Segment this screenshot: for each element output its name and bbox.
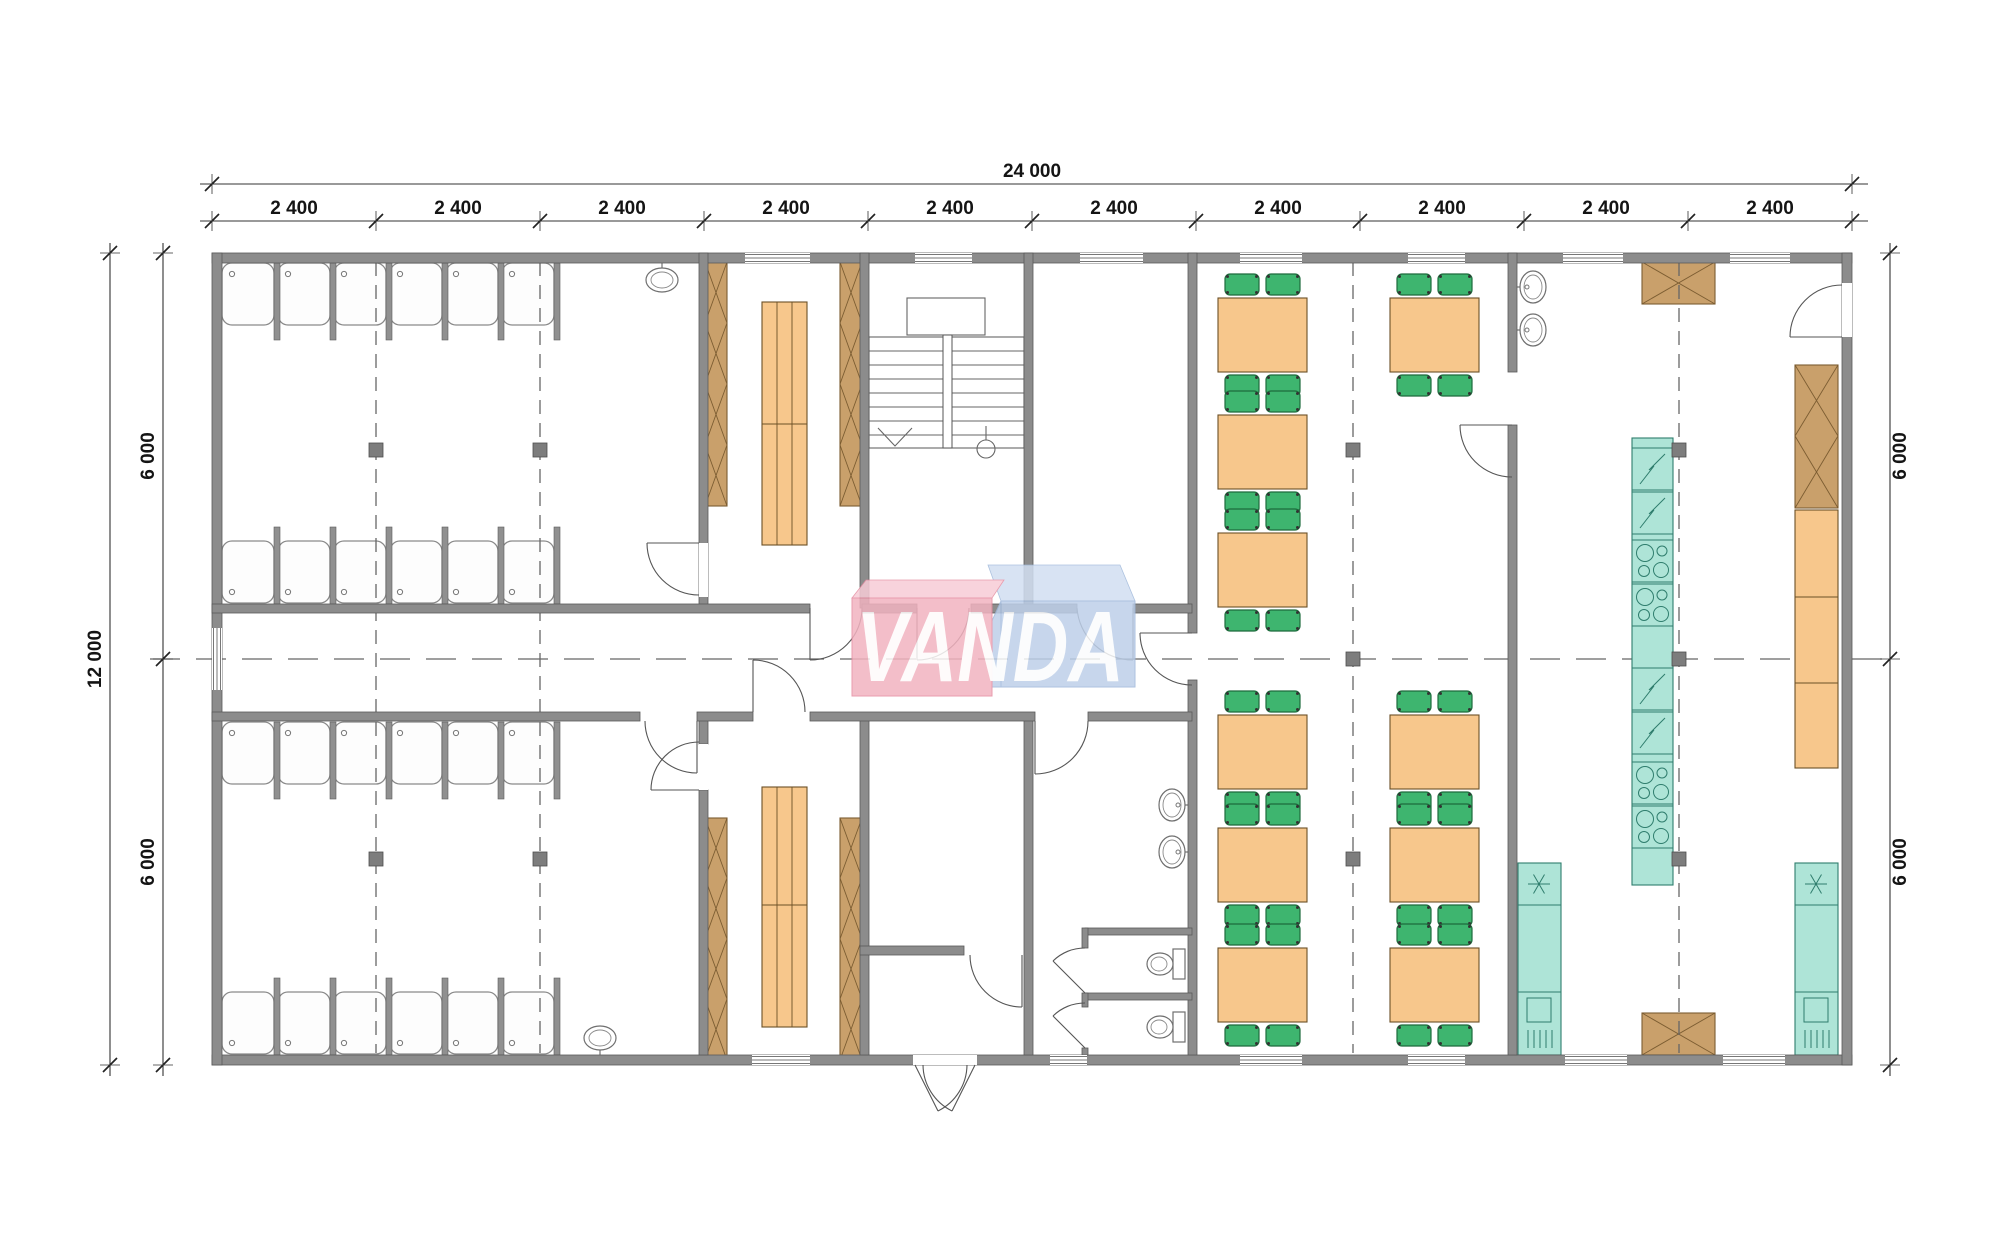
shower-stall	[446, 992, 498, 1054]
shower-stall	[502, 992, 554, 1054]
dimension-label: 2 400	[598, 198, 646, 219]
shower-stall	[222, 263, 274, 325]
dimension-label: 2 400	[926, 198, 974, 219]
shower-stall	[390, 722, 442, 784]
dimension-label: 6 000	[1890, 432, 1911, 480]
sink-unit-icon	[1518, 863, 1561, 1055]
shower-stall	[278, 263, 330, 325]
changing-room-top	[705, 262, 862, 545]
toilet-icon	[1147, 949, 1185, 979]
shower-room-bottom	[222, 722, 616, 1055]
changing-room-bottom	[705, 787, 862, 1060]
bench-icon	[762, 302, 807, 545]
shower-stall	[502, 541, 554, 603]
shower-stall	[278, 541, 330, 603]
shower-stall	[222, 722, 274, 784]
door-shower-top	[647, 543, 699, 595]
door-exterior-right	[1790, 285, 1842, 337]
shower-stall	[334, 722, 386, 784]
shower-stall	[222, 992, 274, 1054]
shower-stall	[390, 263, 442, 325]
wash-basin-icon	[584, 1026, 616, 1055]
wc-room	[1147, 789, 1188, 1042]
door-wc	[1035, 721, 1088, 774]
shower-stall	[278, 992, 330, 1054]
kitchen-island	[1632, 438, 1673, 885]
shower-stall	[390, 992, 442, 1054]
stair-direction-arrow-icon	[878, 428, 912, 446]
door-changing-bottom	[753, 660, 805, 712]
dimension-label: 2 400	[1418, 198, 1466, 219]
shower-stall	[446, 263, 498, 325]
door-wc-stall	[1053, 1003, 1085, 1048]
dimension-label: 6 000	[138, 838, 159, 886]
watermark: VANDA	[852, 565, 1135, 703]
dimension-label: 2 400	[270, 198, 318, 219]
wash-basin-icon	[1159, 789, 1188, 821]
door-entrance-hall	[970, 955, 1022, 1007]
shower-stall	[222, 541, 274, 603]
shower-stall	[446, 722, 498, 784]
shower-stall	[334, 263, 386, 325]
shower-stall	[502, 263, 554, 325]
dimension-label: 2 400	[1254, 198, 1302, 219]
dimension-label: 12 000	[85, 630, 106, 688]
shower-stall	[446, 541, 498, 603]
tall-cabinet-icon	[1795, 365, 1838, 508]
dimension-label: 2 400	[1746, 198, 1794, 219]
shower-stall	[390, 541, 442, 603]
shower-stall	[502, 722, 554, 784]
dimension-label: 2 400	[1582, 198, 1630, 219]
door-wc-stall	[1053, 948, 1085, 993]
dimension-label: 2 400	[1090, 198, 1138, 219]
shower-room-top	[222, 263, 678, 604]
door-kitchen	[1460, 425, 1512, 477]
double-entrance-door	[915, 1065, 975, 1111]
door-locker-to-shower	[651, 742, 699, 790]
shower-stall	[278, 722, 330, 784]
floor-plan: 24 000 2 400 2 400 2 400 2 400 2 400 2 4…	[0, 0, 2000, 1256]
door-shower-bottom	[645, 721, 697, 773]
counter-icon	[1795, 510, 1838, 768]
wash-basin-icon	[1517, 271, 1546, 303]
bench-icon	[762, 787, 807, 1027]
watermark-text: VANDA	[856, 591, 1124, 703]
dimension-label: 24 000	[1003, 161, 1061, 182]
shower-stall	[334, 541, 386, 603]
sink-unit-icon	[1795, 863, 1838, 1055]
dimension-label: 2 400	[434, 198, 482, 219]
wash-basin-icon	[1517, 314, 1546, 346]
wash-basin-icon	[646, 263, 678, 292]
dimension-label: 6 000	[138, 432, 159, 480]
dimension-label: 2 400	[762, 198, 810, 219]
staircase	[869, 298, 1024, 458]
wash-basin-icon	[1159, 836, 1188, 868]
shower-stall	[334, 992, 386, 1054]
dimension-label: 6 000	[1890, 838, 1911, 886]
toilet-icon	[1147, 1012, 1185, 1042]
